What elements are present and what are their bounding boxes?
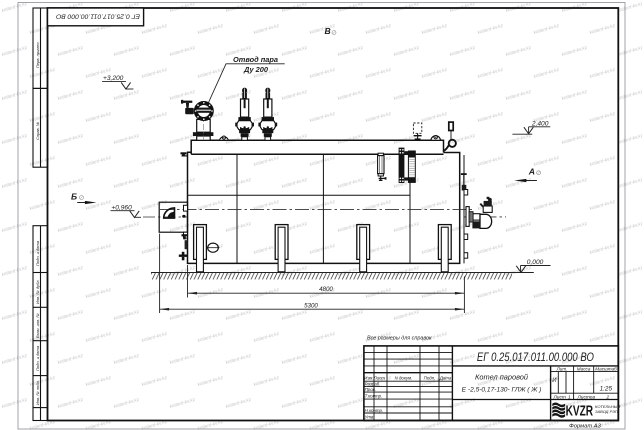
svg-text:Формат А3: Формат А3 (569, 423, 601, 429)
svg-text:Ду 200: Ду 200 (243, 65, 269, 74)
svg-text:Справ. №: Справ. № (35, 121, 40, 140)
svg-text:N докум.: N докум. (395, 375, 413, 380)
svg-text:Отвод пара: Отвод пара (233, 55, 278, 64)
svg-text:5300: 5300 (304, 302, 318, 309)
svg-text:Пров.: Пров. (365, 387, 377, 392)
svg-text:Подп. и дата: Подп. и дата (35, 345, 40, 371)
svg-text:Перв. примен.: Перв. примен. (35, 41, 40, 68)
svg-text:Дата: Дата (439, 375, 452, 380)
svg-text:KVZR: KVZR (566, 404, 594, 420)
svg-text:+3,200: +3,200 (103, 75, 124, 82)
svg-text:4800: 4800 (319, 286, 333, 293)
svg-text:Котел паровой: Котел паровой (475, 373, 528, 382)
svg-text:Е -2,5-0,17-130- ГЛЖ ( Ж ): Е -2,5-0,17-130- ГЛЖ ( Ж ) (462, 387, 542, 394)
svg-text:ЕГ 0.25.017.011.00.000 ВО: ЕГ 0.25.017.011.00.000 ВО (477, 351, 594, 364)
svg-text:Утв.: Утв. (365, 415, 375, 420)
svg-text:1: 1 (568, 394, 571, 400)
svg-text:Масштаб: Масштаб (595, 366, 617, 371)
svg-text:Изм.Лист: Изм.Лист (364, 375, 385, 380)
svg-text:Н.контр.: Н.контр. (365, 408, 384, 413)
svg-text:Разраб.: Разраб. (365, 382, 381, 387)
svg-text:Масса: Масса (577, 366, 591, 371)
svg-text:Лист: Лист (553, 394, 566, 400)
svg-text:В: В (325, 26, 331, 36)
svg-text:ЕГ 0.25.017.011.00.000 ВО: ЕГ 0.25.017.011.00.000 ВО (56, 13, 140, 20)
svg-text:Инв. № дубл.: Инв. № дубл. (35, 279, 40, 304)
svg-text:А: А (528, 167, 535, 177)
svg-text:Подп. и дата: Подп. и дата (35, 240, 40, 266)
svg-text:Взам. инв. №: Взам. инв. № (35, 313, 40, 338)
svg-text:Лит.: Лит. (556, 366, 568, 371)
svg-text:0,000: 0,000 (527, 259, 544, 266)
svg-text:Б: Б (71, 191, 77, 201)
svg-text:Листов: Листов (577, 394, 596, 400)
svg-text:2: 2 (606, 394, 610, 400)
svg-text:ЗАВОД РЭП: ЗАВОД РЭП (595, 409, 618, 414)
svg-text:Все размеры для справок: Все размеры для справок (367, 336, 432, 342)
svg-text:2,400: 2,400 (531, 120, 549, 127)
svg-text:Инв. № подл.: Инв. № подл. (35, 380, 40, 405)
svg-text:И: И (552, 378, 557, 384)
svg-text:Т.контр.: Т.контр. (365, 394, 383, 399)
svg-text:Подп.: Подп. (424, 375, 436, 380)
svg-text:1:25: 1:25 (600, 386, 613, 393)
